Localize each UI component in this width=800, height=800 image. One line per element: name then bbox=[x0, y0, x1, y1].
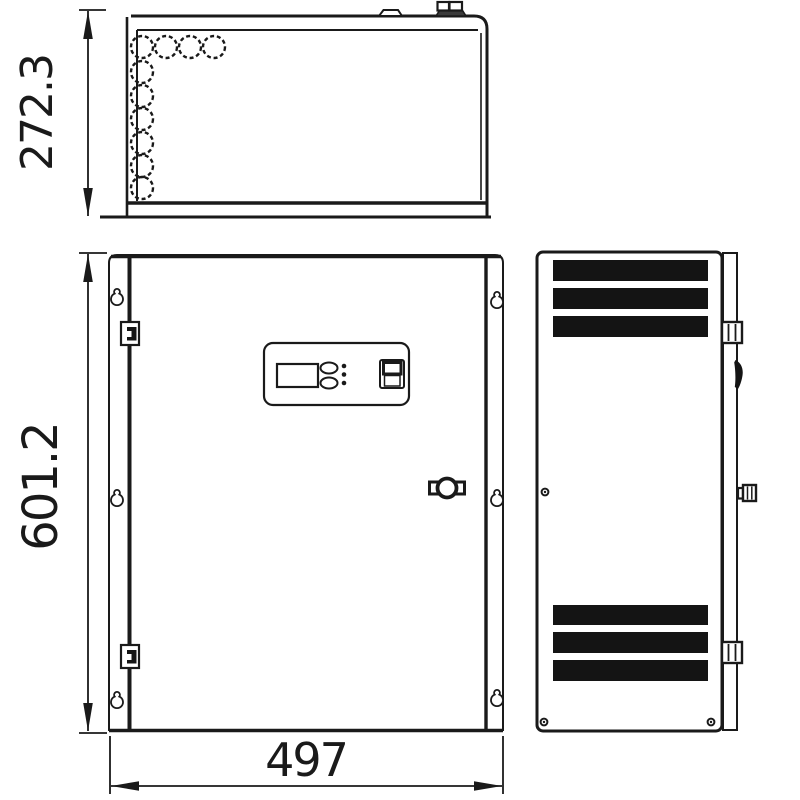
knockout-hole bbox=[131, 108, 153, 130]
screw-center bbox=[543, 721, 545, 723]
led-icon bbox=[342, 372, 347, 377]
hinge-block bbox=[722, 322, 742, 343]
enclosure-technical-drawing: 272.3 bbox=[0, 0, 800, 800]
vent-slot bbox=[553, 605, 708, 625]
screw-center bbox=[710, 721, 712, 723]
screw-icon bbox=[708, 719, 715, 726]
lock-barrel bbox=[438, 479, 457, 498]
arrowhead-down bbox=[83, 188, 93, 216]
oval-button-top bbox=[321, 363, 338, 374]
screw-icon bbox=[541, 719, 548, 726]
top-view: 272.3 bbox=[12, 2, 491, 217]
led-icon bbox=[342, 381, 347, 386]
top-tab bbox=[379, 10, 402, 16]
screw-icon bbox=[542, 489, 549, 496]
dimension-front-view-width: 497 bbox=[110, 733, 503, 794]
side-latch bbox=[738, 485, 756, 501]
knockout-hole bbox=[131, 36, 153, 58]
side-hinge-bottom bbox=[722, 642, 742, 663]
arrowhead-right bbox=[474, 781, 502, 791]
keyhole bbox=[111, 490, 123, 506]
lcd-display bbox=[277, 364, 318, 387]
key-switch bbox=[380, 360, 404, 388]
door-hinge-bottom bbox=[121, 645, 139, 668]
vent-slot bbox=[553, 316, 708, 337]
knockout-hole bbox=[155, 36, 177, 58]
door-hinge-top bbox=[121, 322, 139, 345]
gland-nut-right bbox=[450, 2, 463, 11]
led-indicators bbox=[342, 364, 347, 386]
vent-slot bbox=[553, 288, 708, 309]
knockout-hole bbox=[131, 85, 153, 107]
top-view-body bbox=[100, 2, 491, 217]
side-hinge-top bbox=[722, 322, 742, 343]
vent-slot bbox=[553, 260, 708, 281]
dimension-top-view-height: 272.3 bbox=[12, 10, 106, 216]
arrowhead-up bbox=[83, 254, 93, 282]
side-view bbox=[537, 252, 756, 731]
latch-head bbox=[743, 485, 756, 501]
knockout-hole bbox=[179, 36, 201, 58]
gland-nut-left bbox=[438, 2, 450, 11]
top-and-right-wall-outer bbox=[131, 16, 487, 216]
keyhole bbox=[111, 692, 123, 708]
knockout-hole bbox=[203, 36, 225, 58]
arrowhead-left bbox=[111, 781, 139, 791]
dimension-label-front-height: 601.2 bbox=[13, 423, 69, 550]
keyhole bbox=[491, 292, 503, 308]
dimension-front-view-height: 601.2 bbox=[13, 253, 107, 733]
door-lock bbox=[430, 479, 465, 498]
cable-gland-bolt bbox=[436, 2, 466, 16]
dimension-label-top-height: 272.3 bbox=[12, 55, 63, 171]
vent-slot bbox=[553, 660, 708, 681]
lever bbox=[734, 360, 743, 389]
key-switch-bottom bbox=[385, 376, 401, 387]
arrowhead-down bbox=[83, 703, 93, 731]
led-icon bbox=[342, 364, 347, 369]
knockout-hole bbox=[131, 155, 153, 177]
control-panel bbox=[264, 343, 409, 405]
drawing-canvas: 272.3 bbox=[0, 0, 800, 800]
knockout-holes bbox=[131, 36, 225, 199]
keyhole bbox=[491, 490, 503, 506]
knockout-hole bbox=[131, 61, 153, 83]
screw-center bbox=[544, 491, 546, 493]
keyhole bbox=[491, 690, 503, 706]
arrowhead-up bbox=[83, 11, 93, 39]
oval-button-bottom bbox=[321, 378, 338, 389]
hinge-block bbox=[722, 642, 742, 663]
knockout-hole bbox=[131, 177, 153, 199]
vent-slot bbox=[553, 632, 708, 653]
knockout-hole bbox=[131, 132, 153, 154]
key-switch-top bbox=[384, 363, 402, 375]
keyhole bbox=[111, 289, 123, 305]
hinge-pin-gap bbox=[127, 331, 132, 337]
front-view: 601.2 bbox=[13, 253, 503, 794]
hinge-pin-gap bbox=[127, 654, 132, 660]
dimension-label-front-width: 497 bbox=[265, 733, 347, 787]
